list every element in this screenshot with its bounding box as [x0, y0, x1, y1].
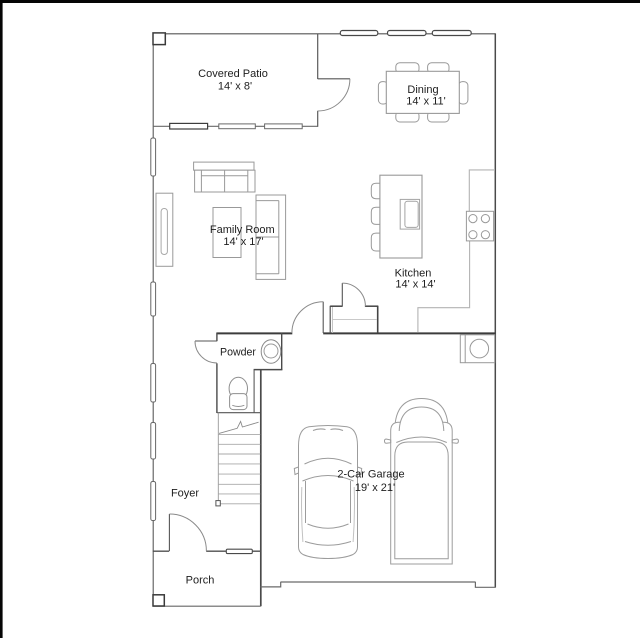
svg-text:Foyer: Foyer: [171, 488, 199, 500]
svg-text:14' x 8': 14' x 8': [218, 80, 252, 92]
svg-text:19' x 21': 19' x 21': [355, 482, 395, 494]
svg-text:Family Room: Family Room: [210, 224, 275, 236]
svg-text:14' x 14': 14' x 14': [395, 279, 435, 291]
svg-text:Covered Patio: Covered Patio: [198, 68, 268, 80]
svg-text:Powder: Powder: [220, 346, 256, 358]
svg-text:Porch: Porch: [186, 574, 215, 586]
svg-text:Kitchen: Kitchen: [395, 267, 432, 279]
svg-text:14' x 11': 14' x 11': [406, 95, 445, 107]
svg-text:14' x 17': 14' x 17': [223, 236, 263, 248]
svg-text:Dining: Dining: [407, 84, 438, 96]
svg-text:2-Car Garage: 2-Car Garage: [337, 468, 404, 480]
